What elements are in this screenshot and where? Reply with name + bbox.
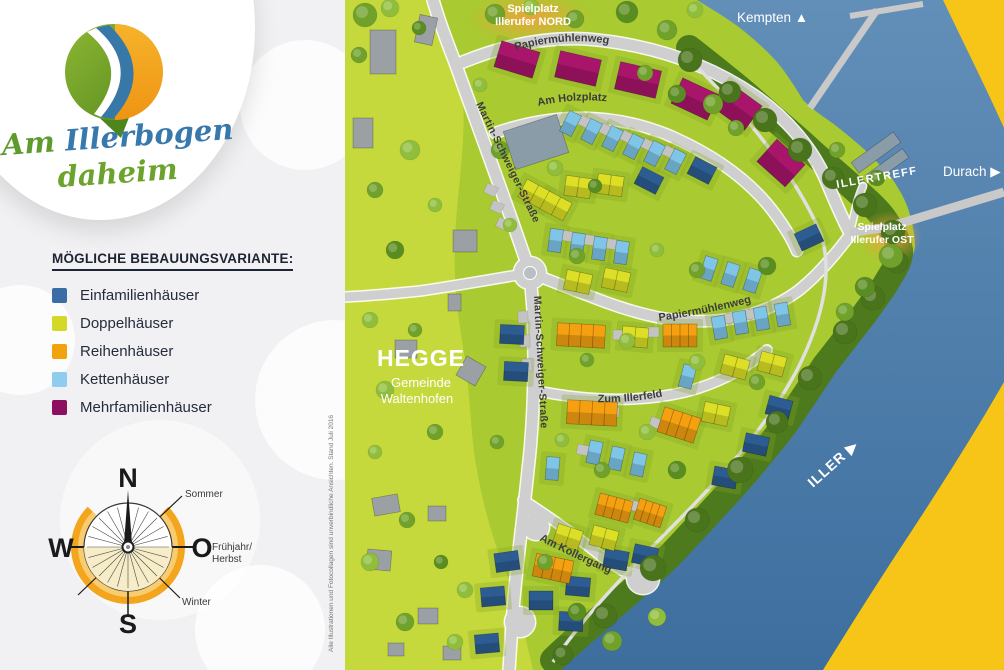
direction-durach-label: Durach ▶ xyxy=(943,164,1001,179)
tree xyxy=(490,435,504,449)
existing-building xyxy=(448,294,461,311)
tree xyxy=(668,85,686,103)
tree xyxy=(727,457,753,483)
tree xyxy=(555,433,569,447)
tree xyxy=(396,613,414,631)
tree xyxy=(719,81,741,103)
tree xyxy=(447,634,463,650)
compass-north-label: N xyxy=(118,463,138,493)
tree xyxy=(616,1,638,23)
house-einfamilienhaus xyxy=(500,324,525,344)
tree xyxy=(547,160,563,176)
tree xyxy=(619,333,635,349)
playground-east-label-2: Illerufer OST xyxy=(850,234,914,246)
roundabout-island xyxy=(524,267,537,280)
existing-building xyxy=(353,118,373,148)
legend-list: EinfamilienhäuserDoppelhäuserReihenhäuse… xyxy=(52,287,322,416)
tree xyxy=(434,555,448,569)
tree xyxy=(580,353,594,367)
site-plan-map: Papiermühlenweg Am Holzplatz Papiermühle… xyxy=(345,0,1004,670)
tree xyxy=(650,243,664,257)
tree xyxy=(639,424,655,440)
decor-circle xyxy=(240,40,345,170)
tree xyxy=(427,424,443,440)
existing-building xyxy=(388,643,404,656)
tree xyxy=(678,48,702,72)
legend-label-einfamilien: Einfamilienhäuser xyxy=(80,287,199,304)
playground-north-label-1: Spielplatz xyxy=(507,3,559,15)
tree xyxy=(351,47,367,63)
logo-title-am: Am xyxy=(1,124,56,162)
tree xyxy=(798,366,822,390)
house-einfamilienhaus xyxy=(504,361,529,381)
disclaimer-text: Alle Illustrationen und Fotocollagen sin… xyxy=(328,442,335,652)
hegge-sub-label-1: Gemeinde xyxy=(391,375,451,390)
tree xyxy=(362,312,378,328)
tree xyxy=(457,582,473,598)
tree xyxy=(537,554,553,570)
tree xyxy=(553,645,573,665)
legend-swatch-einfamilien xyxy=(52,288,67,303)
house-reihenhaus xyxy=(556,323,605,348)
parking-pad xyxy=(518,311,528,323)
compass-west-label: W xyxy=(48,533,74,563)
legend-item-einfamilien: Einfamilienhäuser xyxy=(52,287,322,304)
legend-item-mehrfamilien: Mehrfamilienhäuser xyxy=(52,399,322,416)
hegge-sub-label-2: Waltenhofen xyxy=(381,391,454,406)
house-einfamilienhaus xyxy=(529,591,553,610)
legend-title: MÖGLICHE BEBAUUNGSVARIANTE: xyxy=(52,251,293,271)
tree xyxy=(687,2,703,18)
tree xyxy=(473,78,487,92)
tree xyxy=(594,462,610,478)
tree xyxy=(758,257,776,275)
tree xyxy=(368,445,382,459)
tree xyxy=(766,411,788,433)
tree xyxy=(569,248,585,264)
tree xyxy=(593,604,617,628)
house-kettenhaus xyxy=(545,456,560,480)
existing-building xyxy=(453,230,477,252)
compass-rose: N S W O Sommer Frühjahr/ Herbst Winter xyxy=(30,445,265,650)
tree xyxy=(657,20,677,40)
tree xyxy=(602,631,622,651)
tree xyxy=(353,3,377,27)
house-einfamilienhaus xyxy=(480,586,506,607)
legend-label-doppel: Doppelhäuser xyxy=(80,315,173,332)
compass-east-label: O xyxy=(191,533,212,563)
tree xyxy=(829,142,845,158)
tree xyxy=(400,140,420,160)
legend-item-reihen: Reihenhäuser xyxy=(52,343,322,360)
compass-summer-label: Sommer xyxy=(185,489,223,500)
tree xyxy=(648,608,666,626)
legend-swatch-doppel xyxy=(52,316,67,331)
tree xyxy=(399,512,415,528)
tree xyxy=(568,603,586,621)
tree xyxy=(668,461,686,479)
existing-building xyxy=(370,30,396,74)
legend-swatch-reihen xyxy=(52,344,67,359)
house-kettenhaus xyxy=(547,228,563,253)
tree xyxy=(753,108,777,132)
tree xyxy=(749,374,765,390)
tree xyxy=(408,323,422,337)
tree xyxy=(588,179,602,193)
tree xyxy=(689,262,705,278)
legend-item-ketten: Kettenhäuser xyxy=(52,371,322,388)
tree xyxy=(855,277,875,297)
playground-north-label-2: Illerufer NORD xyxy=(495,16,571,28)
tree xyxy=(853,193,877,217)
legend: MÖGLICHE BEBAUUNGSVARIANTE: Einfamilienh… xyxy=(52,250,322,427)
compass-springfall-label-2: Herbst xyxy=(212,554,242,565)
tree xyxy=(503,218,517,232)
existing-building xyxy=(428,506,446,521)
house-einfamilienhaus xyxy=(474,633,500,654)
tree xyxy=(640,555,666,581)
tree xyxy=(788,138,812,162)
house-reihenhaus xyxy=(663,324,697,347)
info-panel: Am Illerbogen daheim MÖGLICHE BEBAUUNGSV… xyxy=(0,0,345,670)
existing-building xyxy=(418,608,438,624)
compass-springfall-label-1: Frühjahr/ xyxy=(212,542,252,553)
legend-swatch-mehrfamilien xyxy=(52,400,67,415)
compass-winter-label: Winter xyxy=(182,597,212,608)
compass-hub-dot xyxy=(126,545,130,549)
tree xyxy=(381,0,399,17)
tree xyxy=(361,553,379,571)
tree xyxy=(386,241,404,259)
legend-label-reihen: Reihenhäuser xyxy=(80,343,173,360)
compass-south-label: S xyxy=(119,609,137,639)
legend-item-doppel: Doppelhäuser xyxy=(52,315,322,332)
page: Am Illerbogen daheim MÖGLICHE BEBAUUNGSV… xyxy=(0,0,1004,670)
legend-label-mehrfamilien: Mehrfamilienhäuser xyxy=(80,399,212,416)
playground-east-label-1: Spielplatz xyxy=(857,221,906,233)
house-kettenhaus xyxy=(613,240,629,265)
house-einfamilienhaus xyxy=(494,550,520,572)
tree xyxy=(637,65,653,81)
tree xyxy=(836,303,854,321)
tree xyxy=(833,320,857,344)
tree xyxy=(689,354,705,370)
house-kettenhaus xyxy=(591,236,607,261)
legend-swatch-ketten xyxy=(52,372,67,387)
direction-kempten-label: Kempten ▲ xyxy=(737,10,808,25)
hegge-label: HEGGE xyxy=(377,345,465,371)
tree xyxy=(728,120,744,136)
tree xyxy=(685,508,709,532)
tree xyxy=(412,21,426,35)
legend-label-ketten: Kettenhäuser xyxy=(80,371,169,388)
tree xyxy=(367,182,383,198)
tree xyxy=(879,244,903,268)
tree xyxy=(428,198,442,212)
